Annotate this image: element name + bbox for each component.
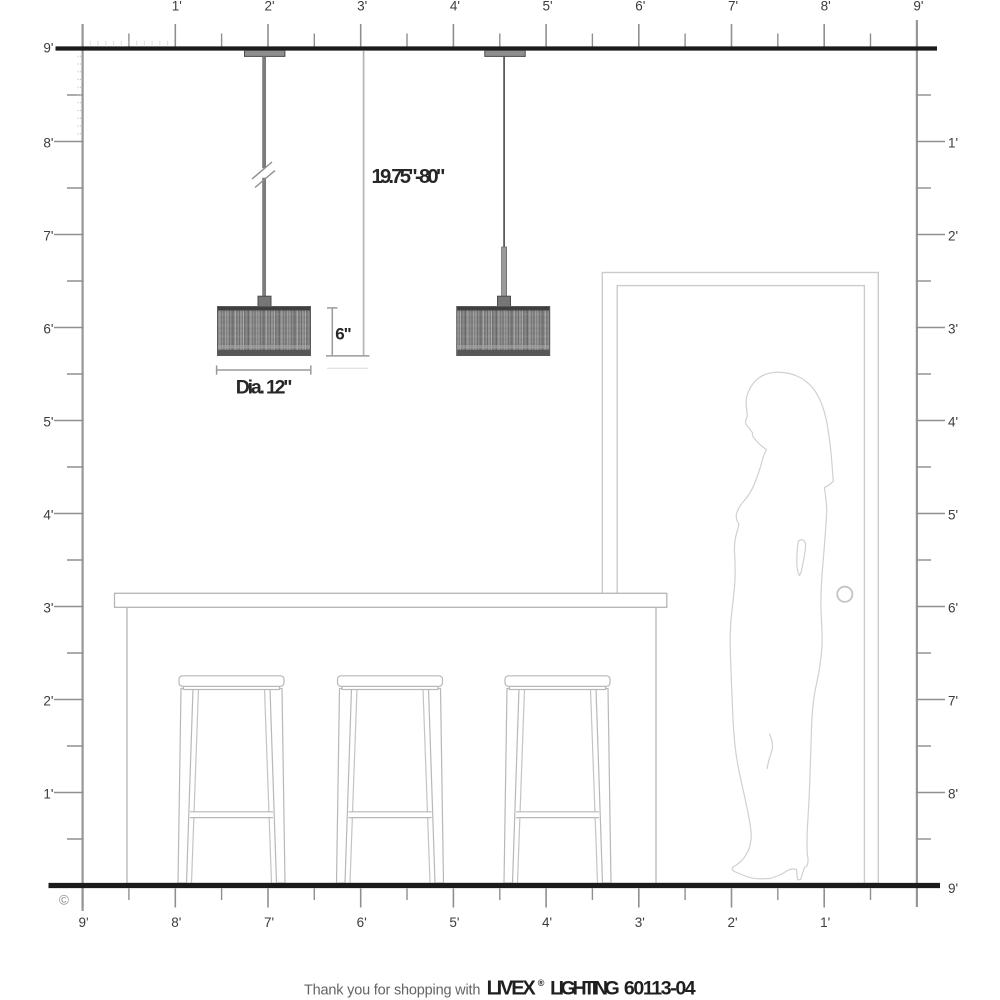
svg-text:6': 6' (948, 601, 958, 616)
svg-text:5': 5' (449, 915, 459, 930)
svg-text:5': 5' (43, 415, 53, 430)
svg-text:3': 3' (948, 322, 958, 337)
svg-text:6': 6' (635, 0, 645, 13)
svg-text:3': 3' (357, 0, 367, 13)
svg-text:8': 8' (171, 915, 181, 930)
svg-text:5': 5' (948, 508, 958, 523)
svg-text:19.75"-80": 19.75"-80" (372, 166, 446, 188)
svg-text:3': 3' (635, 915, 645, 930)
svg-text:1': 1' (43, 787, 53, 802)
svg-text:9': 9' (79, 915, 89, 930)
svg-text:2': 2' (264, 0, 274, 13)
svg-text:60113-04: 60113-04 (624, 978, 696, 1000)
svg-text:4': 4' (450, 0, 460, 13)
svg-text:1': 1' (172, 0, 182, 13)
svg-text:2': 2' (43, 694, 53, 709)
svg-text:©: © (59, 893, 69, 908)
svg-text:7': 7' (728, 0, 738, 13)
svg-text:3': 3' (43, 601, 53, 616)
svg-text:7': 7' (43, 229, 53, 244)
svg-text:6': 6' (357, 915, 367, 930)
svg-text:8': 8' (821, 0, 831, 13)
svg-text:Thank you for shopping with: Thank you for shopping with (304, 983, 480, 999)
svg-text:®: ® (538, 978, 545, 988)
svg-text:1': 1' (948, 136, 958, 151)
svg-text:1': 1' (820, 915, 830, 930)
svg-text:4': 4' (948, 415, 958, 430)
svg-text:2': 2' (727, 915, 737, 930)
svg-text:6": 6" (335, 324, 352, 343)
svg-text:9': 9' (913, 0, 923, 13)
svg-text:2': 2' (948, 229, 958, 244)
svg-text:7': 7' (264, 915, 274, 930)
svg-text:8': 8' (948, 787, 958, 802)
svg-text:4': 4' (43, 508, 53, 523)
svg-text:7': 7' (948, 694, 958, 709)
svg-text:9': 9' (948, 881, 958, 896)
svg-text:8': 8' (43, 136, 53, 151)
svg-text:6': 6' (43, 322, 53, 337)
svg-text:LIGHTING: LIGHTING (550, 978, 620, 1000)
svg-text:Dia. 12": Dia. 12" (236, 377, 293, 399)
svg-text:9': 9' (43, 41, 53, 56)
svg-text:LIVEX: LIVEX (487, 978, 537, 1000)
svg-text:4': 4' (542, 915, 552, 930)
svg-text:5': 5' (543, 0, 553, 13)
